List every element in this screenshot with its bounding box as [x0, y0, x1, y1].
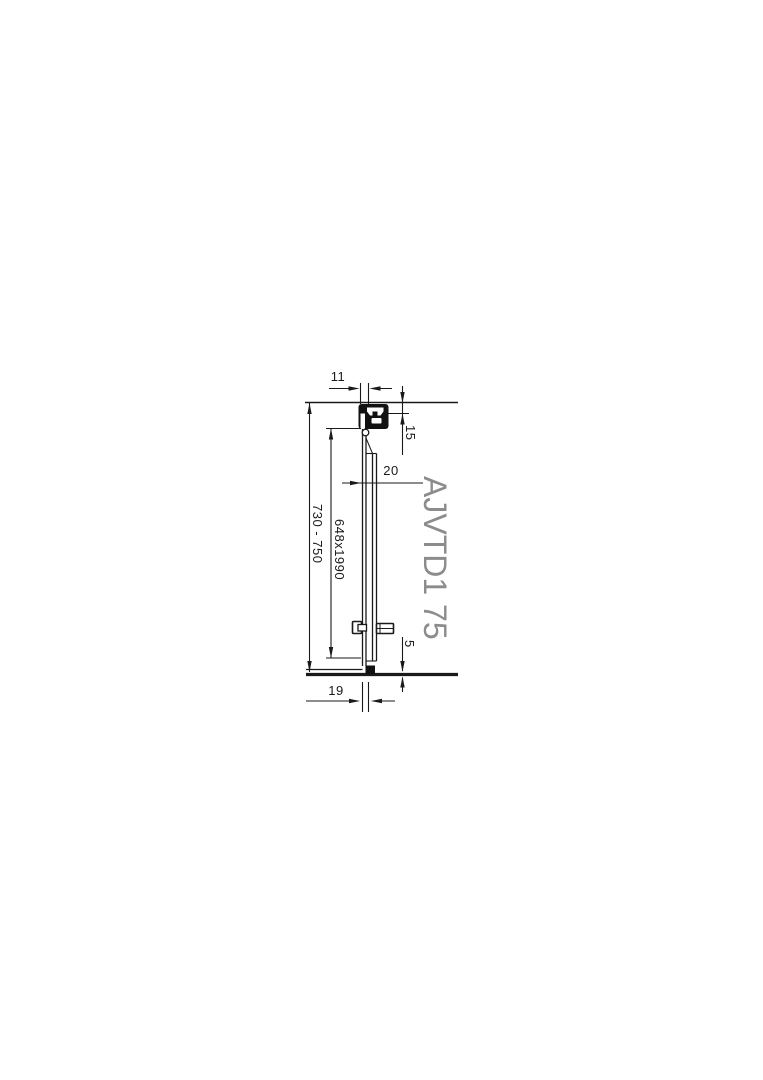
dim-label-bottom-width: 19 — [325, 684, 347, 697]
dim-label-top-width: 11 — [327, 370, 349, 383]
arrow-left-top-width — [370, 386, 381, 390]
arrow-up-floor-gap — [400, 677, 404, 688]
arrow-left-bottom-width — [371, 699, 382, 703]
arrow-right-bottom-width — [349, 699, 360, 703]
dim-label-glass-size: 648x1990 — [333, 519, 346, 580]
profile-side-slot — [361, 414, 366, 430]
arrow-right-top-width — [349, 386, 360, 390]
hanger-taper-line — [366, 438, 373, 454]
arrow-down-profile-height — [400, 392, 404, 403]
arrow-up-height-range — [307, 403, 311, 414]
arrow-up-glass-size — [329, 429, 333, 440]
arrow-down-height-range — [307, 661, 311, 672]
section-drawing — [0, 0, 763, 1080]
dim-label-height-range: 730 - 750 — [311, 504, 324, 563]
product-code-text: AJVTD1 75 — [419, 476, 451, 640]
dim-label-floor-gap: 5 — [403, 640, 416, 648]
technical-drawing-sheet: 11 15 20 730 - 750 648x1990 5 19 AJVTD1 … — [0, 0, 763, 1080]
bottom-guide-block — [366, 666, 376, 675]
arrow-up-profile-height — [400, 414, 404, 425]
hanger-roller-pin — [362, 429, 369, 436]
knob-neck — [358, 625, 367, 632]
dim-label-panel-thickness: 20 — [379, 464, 403, 477]
top-mounting-profile — [359, 404, 389, 436]
arrow-right-panel-thickness — [350, 481, 361, 485]
arrow-down-glass-size — [329, 647, 333, 658]
dim-label-profile-height: 15 — [404, 425, 417, 440]
arrow-down-floor-gap — [400, 661, 404, 672]
profile-notch — [373, 412, 378, 416]
profile-lower-cutout — [372, 418, 382, 424]
